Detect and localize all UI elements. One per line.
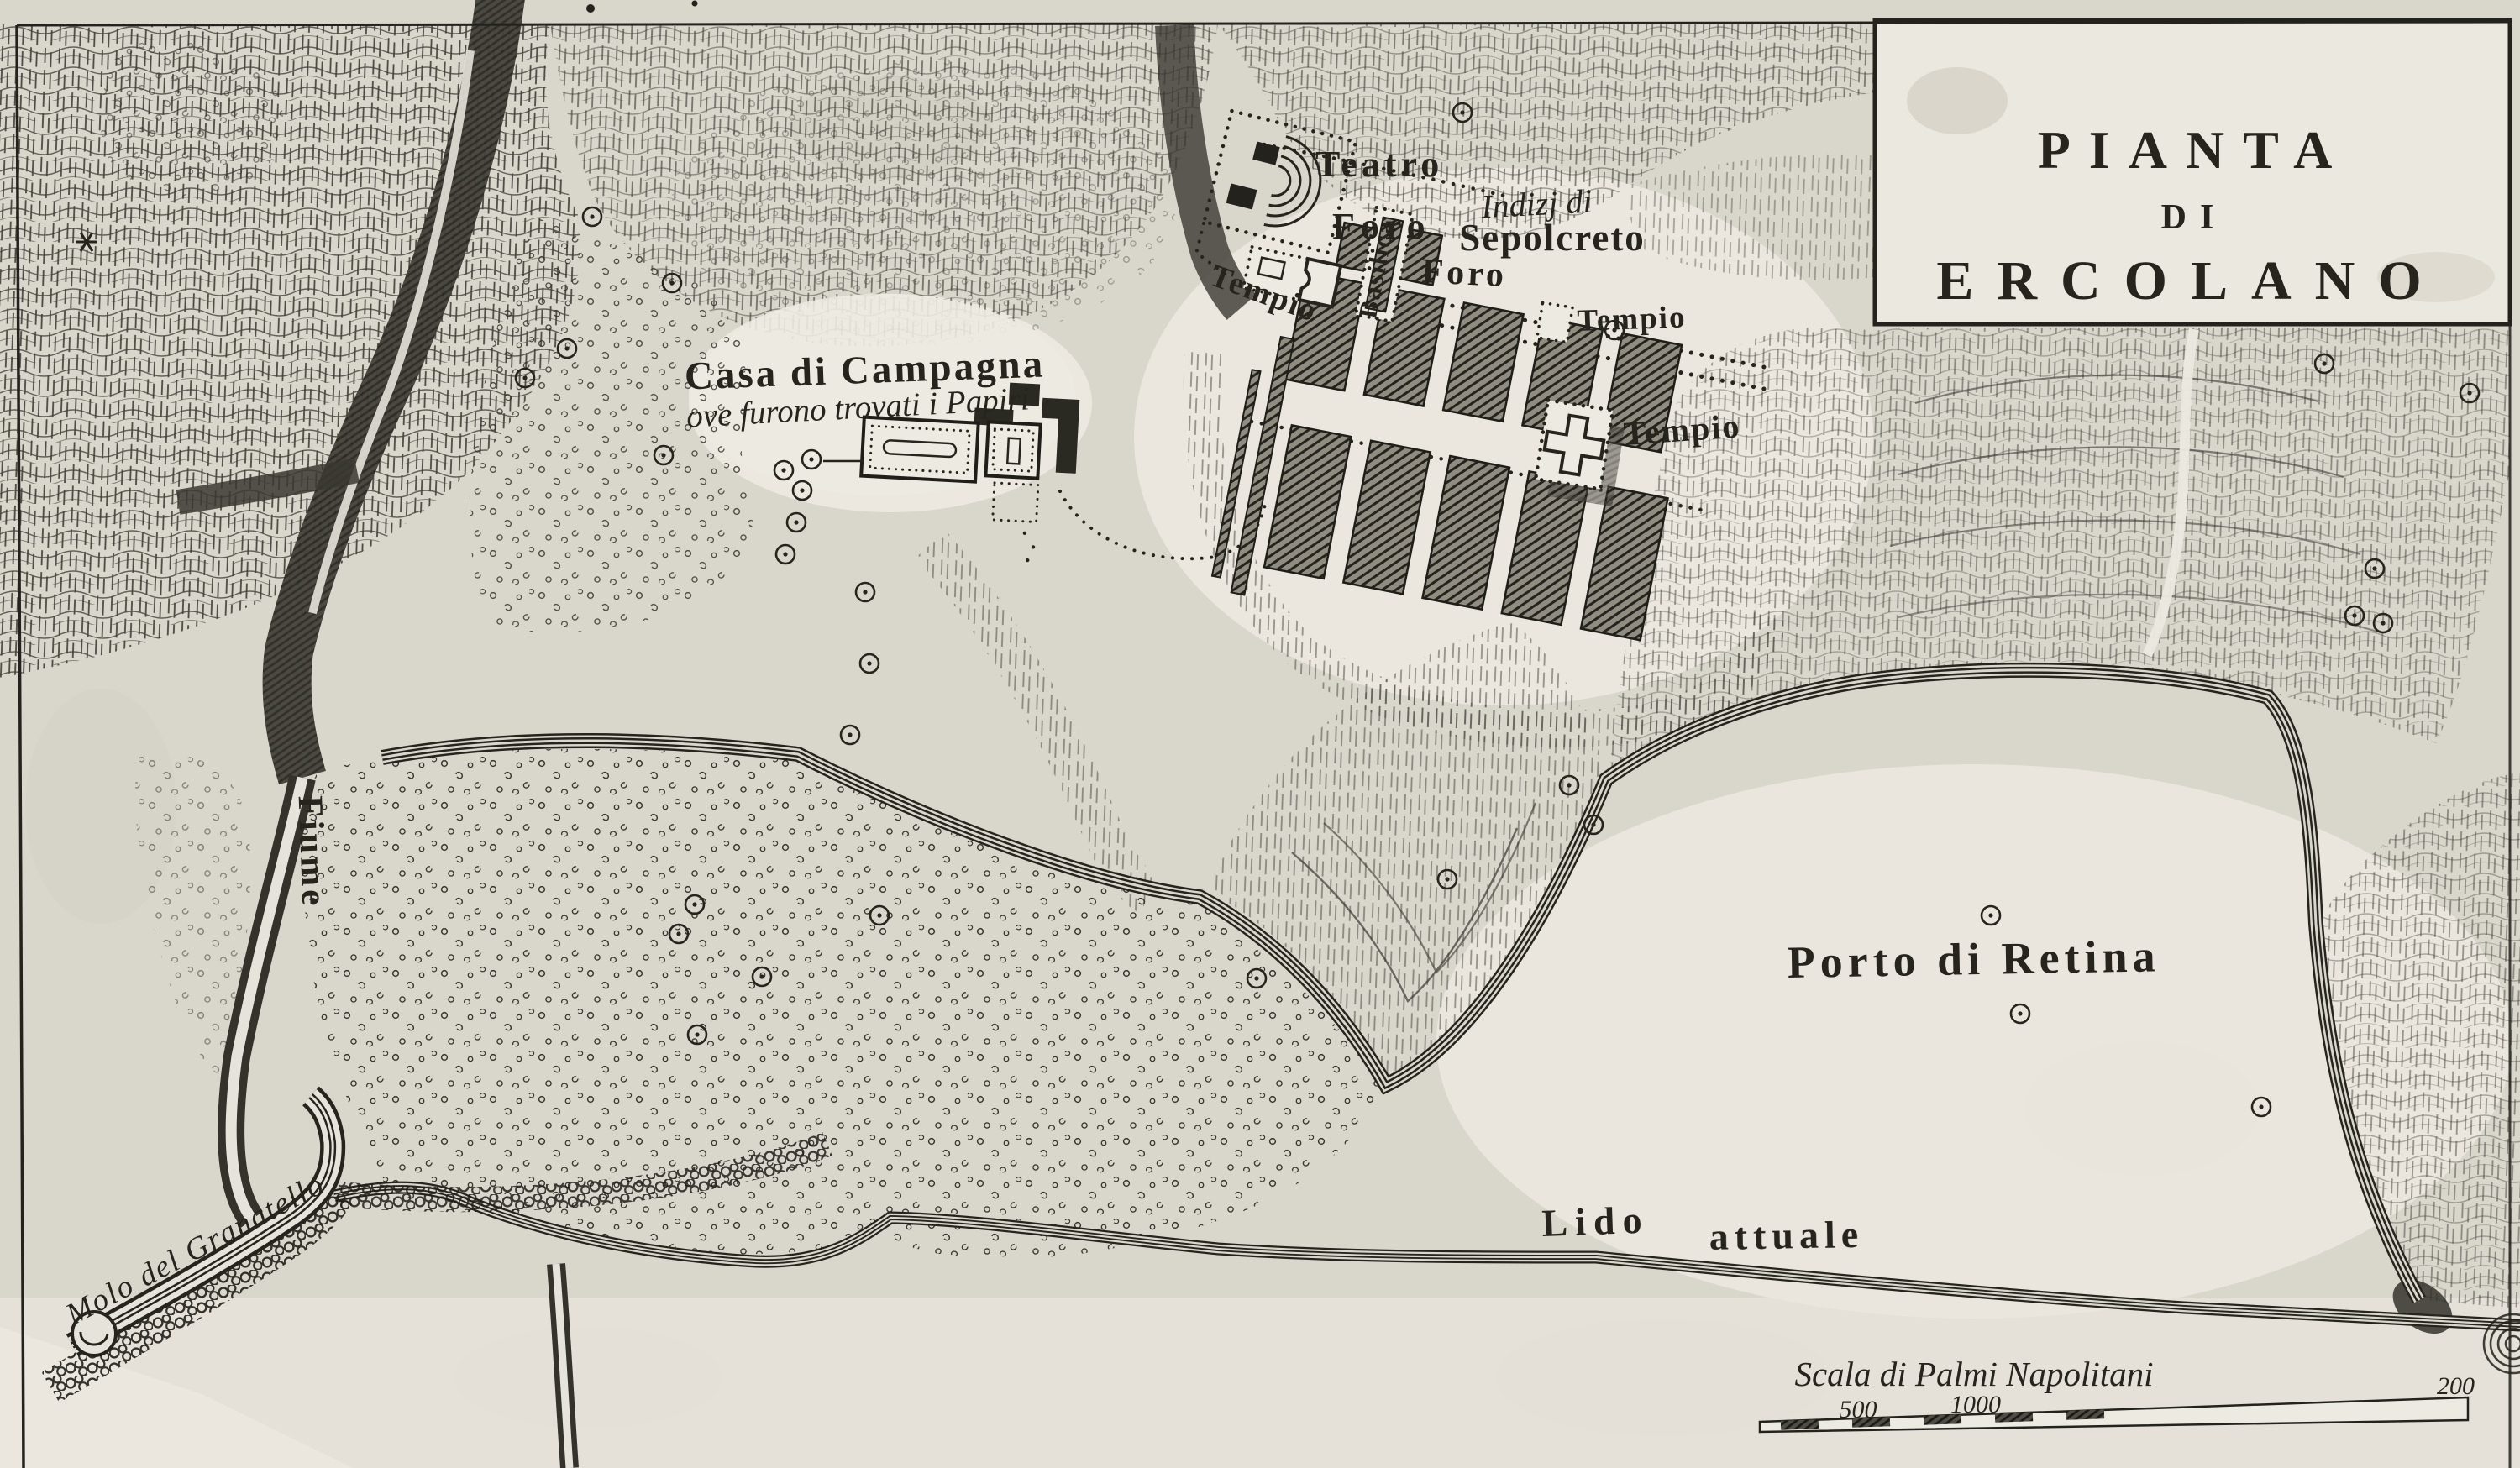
ink-speck: [586, 4, 595, 13]
title-cartouche: PIANTA DI ERCOLANO: [1875, 20, 2510, 324]
label-lido: Lido: [1541, 1198, 1651, 1245]
label-fiume: Fiume: [291, 795, 333, 910]
map-page: Teatro Foro Foro Basilica Tempio Tempio …: [0, 0, 2520, 1468]
ink-speck: [692, 1, 698, 7]
label-attuale: attuale: [1709, 1213, 1864, 1258]
map-canvas: Teatro Foro Foro Basilica Tempio Tempio …: [0, 0, 2520, 1468]
tempio-upper-right-building: [1537, 302, 1572, 342]
label-sepolcreto-line2: Sepolcreto: [1459, 217, 1646, 259]
scale-title: Scala di Palmi Napolitani: [1794, 1355, 2153, 1393]
title-line2: DI: [2161, 198, 2228, 237]
label-tempio-upper-right: Tempio: [1577, 300, 1687, 338]
title-line1: PIANTA: [2038, 120, 2351, 180]
scale-tick-200: 200: [2437, 1372, 2475, 1400]
label-teatro: Teatro: [1315, 144, 1443, 185]
label-porto-di-retina: Porto di Retina: [1787, 931, 2160, 988]
title-line3: ERCOLANO: [1936, 250, 2444, 312]
